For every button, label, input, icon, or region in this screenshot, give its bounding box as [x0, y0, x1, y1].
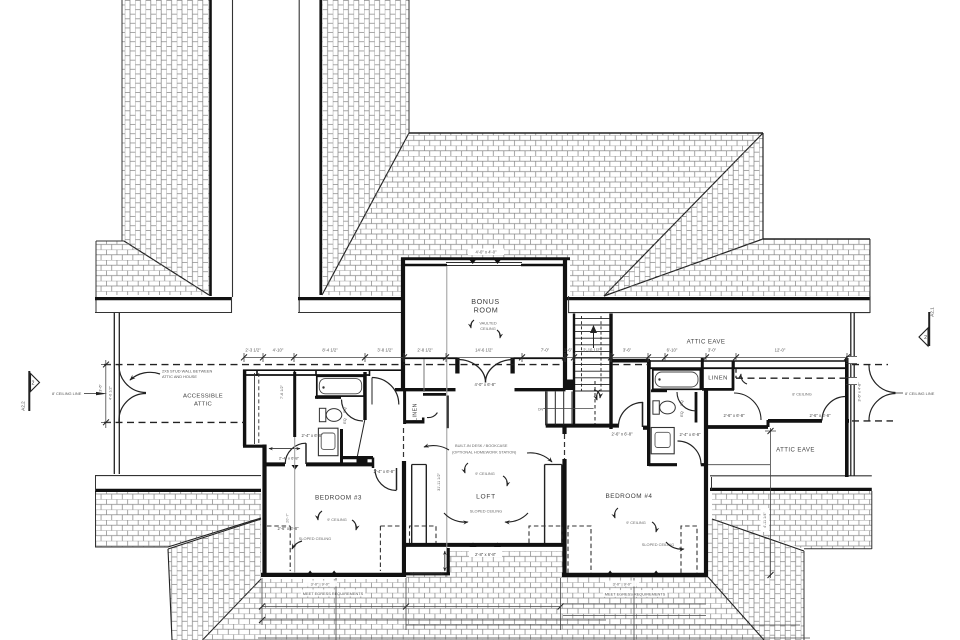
svg-text:ATTIC: ATTIC: [194, 402, 213, 408]
svg-text:EQ: EQ: [343, 407, 347, 413]
svg-text:MEET EGRESS REQUIREMENTS: MEET EGRESS REQUIREMENTS: [605, 592, 666, 597]
svg-text:20'-7": 20'-7": [286, 513, 290, 523]
svg-text:BEDROOM #4: BEDROOM #4: [606, 493, 653, 500]
svg-text:LOFT: LOFT: [476, 494, 496, 501]
svg-text:EQ: EQ: [343, 418, 347, 424]
svg-text:3'-6": 3'-6": [623, 348, 632, 353]
svg-text:2'-4" x 6'-8": 2'-4" x 6'-8": [373, 469, 395, 474]
svg-text:6'-10": 6'-10": [667, 348, 678, 353]
svg-text:2'-10 1/2": 2'-10 1/2": [583, 348, 601, 353]
svg-text:2'-8 1/2": 2'-8 1/2": [417, 348, 433, 353]
svg-text:BEDROOM #3: BEDROOM #3: [315, 495, 362, 502]
svg-text:ATTIC EAVE: ATTIC EAVE: [776, 447, 815, 454]
svg-text:2'-6" x 6'-8": 2'-6" x 6'-8": [277, 526, 299, 531]
svg-text:LINEN: LINEN: [413, 403, 419, 421]
svg-text:7'-6 1/2": 7'-6 1/2": [280, 384, 284, 399]
svg-text:LINEN: LINEN: [708, 376, 728, 382]
svg-text:12'-0": 12'-0": [775, 348, 786, 353]
svg-text:2X6 STUD WALL BETWEEN: 2X6 STUD WALL BETWEEN: [162, 369, 212, 374]
svg-text:SLOPED CEILING: SLOPED CEILING: [470, 509, 502, 514]
svg-text:2: 2: [924, 335, 927, 341]
svg-text:3'-6" x 4'-8": 3'-6" x 4'-8": [858, 382, 862, 402]
svg-text:3'-0" | 9'-0": 3'-0" | 9'-0": [613, 582, 632, 587]
svg-text:A2.2: A2.2: [21, 401, 26, 411]
svg-text:A2.1: A2.1: [930, 307, 935, 317]
svg-text:EQ: EQ: [680, 400, 684, 406]
svg-text:2'-4" x 6'-8": 2'-4" x 6'-8": [679, 432, 701, 437]
svg-text:DN: DN: [538, 408, 544, 412]
svg-text:3'-0": 3'-0": [708, 348, 717, 353]
svg-text:2'-4" x 6'-8": 2'-4" x 6'-8": [279, 456, 300, 461]
svg-text:2'-6" x 6'-8": 2'-6" x 6'-8": [611, 432, 633, 437]
svg-text:9' CEILING: 9' CEILING: [475, 471, 495, 476]
svg-text:MEET EGRESS REQUIREMENTS: MEET EGRESS REQUIREMENTS: [303, 591, 364, 596]
svg-text:14'-6 1/2": 14'-6 1/2": [475, 348, 493, 353]
svg-text:VAULTED: VAULTED: [479, 321, 497, 326]
svg-text:CEILING: CEILING: [480, 326, 496, 331]
svg-text:8' CEILING LINE: 8' CEILING LINE: [905, 391, 935, 396]
svg-text:ROOM: ROOM: [474, 306, 499, 315]
svg-text:8' CEILING LINE: 8' CEILING LINE: [52, 391, 82, 396]
svg-text:2'-6" x 6'-8": 2'-6" x 6'-8": [723, 413, 745, 418]
svg-text:3'-0" | 9'-0": 3'-0" | 9'-0": [311, 582, 330, 587]
svg-text:9' CEILING: 9' CEILING: [327, 517, 347, 522]
svg-text:1'-6": 1'-6": [564, 348, 573, 353]
svg-text:SLOPED CEILING: SLOPED CEILING: [299, 536, 331, 541]
svg-text:(OPTIONAL HOMEWORK STATION): (OPTIONAL HOMEWORK STATION): [452, 450, 517, 455]
svg-text:ACCESSIBLE: ACCESSIBLE: [183, 394, 223, 400]
svg-text:7'-0": 7'-0": [541, 348, 550, 353]
svg-text:EQ: EQ: [680, 411, 684, 417]
svg-text:4'-0" x 6'-8": 4'-0" x 6'-8": [474, 382, 496, 387]
svg-text:4'-0" x 4'-0": 4'-0" x 4'-0": [475, 250, 497, 255]
svg-text:2'-3 1/2": 2'-3 1/2": [245, 348, 261, 353]
svg-text:ATTIC AND HOUSE: ATTIC AND HOUSE: [162, 374, 197, 379]
svg-text:4'-0 1/2": 4'-0 1/2": [109, 385, 113, 400]
svg-text:3'-6": 3'-6": [99, 384, 103, 392]
svg-text:4'-11 1/4": 4'-11 1/4": [763, 511, 767, 527]
svg-text:BUILT-IN DESK / BOOKCASE: BUILT-IN DESK / BOOKCASE: [455, 443, 508, 448]
svg-text:2: 2: [32, 380, 35, 386]
svg-text:31'-11 1/2": 31'-11 1/2": [437, 472, 441, 490]
svg-text:SLOPED CEILING: SLOPED CEILING: [642, 542, 674, 547]
svg-text:3'-8 1/2": 3'-8 1/2": [377, 348, 393, 353]
svg-text:8'-4 1/2": 8'-4 1/2": [322, 348, 338, 353]
svg-text:9' CEILING: 9' CEILING: [626, 520, 646, 525]
svg-text:4'-10": 4'-10": [273, 348, 284, 353]
svg-text:2'-8" x 6'-8": 2'-8" x 6'-8": [475, 552, 497, 557]
svg-text:8' CEILING: 8' CEILING: [792, 392, 812, 397]
svg-text:2'-4" x 6'-8": 2'-4" x 6'-8": [301, 433, 323, 438]
svg-text:ATTIC EAVE: ATTIC EAVE: [687, 339, 726, 346]
svg-text:2'-6" x 6'-8": 2'-6" x 6'-8": [809, 413, 831, 418]
